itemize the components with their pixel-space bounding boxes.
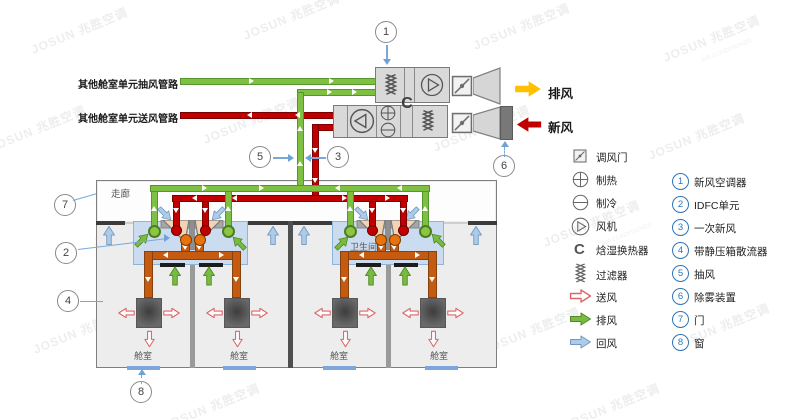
cabin-label: 舱室 [134,349,152,362]
legend-number-5: 5 [672,265,689,282]
exhaust-riser-horizontal [297,89,376,96]
diffuser-static-box [224,298,250,328]
supply-drop [173,201,180,227]
exhaust-connection-circle [148,225,161,238]
supply-air-arrow [232,331,244,348]
fan-icon [420,73,444,97]
fresh-in-arrow [514,116,544,133]
demister-block [500,106,513,140]
door-gap [444,222,468,224]
flow-arrow [202,208,208,213]
legend-numbered-label: 一次新风 [694,221,736,236]
callout-6-number: 6 [501,160,507,172]
supply-connection-circle [171,225,182,236]
callout-2-arrowhead [164,234,170,242]
legend-number-6: 6 [672,288,689,305]
legend-numbered-label: 窗 [694,336,705,351]
callout-5-line [273,157,288,158]
fresh-inlet-duct [473,104,501,142]
legend-symbol-label: 风机 [596,219,617,234]
fan-icon [349,108,375,134]
cooling-icon [380,122,396,138]
legend-numbered-label: 带静压箱散流器 [694,244,768,259]
callout-8: 8 [130,381,152,403]
legend-number-text: 7 [678,314,683,325]
enthalpy-exchanger-icon: C [399,95,415,113]
idfc-funnel-hoppers [356,220,420,250]
legend-numbered-label: 抽风 [694,267,715,282]
legend-number-3: 3 [672,219,689,236]
filter-icon [383,72,399,98]
enthalpy-exchanger-icon: C [574,241,585,258]
exhaust-out-arrow [512,80,544,98]
legend-number-text: 4 [678,245,683,256]
legend-number-1: 1 [672,173,689,190]
supply-duct-drop [428,251,437,298]
diffuser-static-box [420,298,446,328]
exhaust-main-line [150,185,430,192]
flow-arrow [422,206,428,211]
group-divider-wall [288,221,293,368]
supply-air-arrow [206,307,223,319]
flow-arrow [151,206,157,211]
damper-icon [573,149,587,163]
cabin-label: 舱室 [330,349,348,362]
legend-numbered-label: IDFC单元 [694,198,740,213]
other-cabin-supply-pipe [180,112,334,119]
watermark: JOSUN 兆胜空调 [29,3,131,57]
supply-duct-drop [144,251,153,298]
exhaust-out-label: 排风 [548,83,573,102]
callout-3-number: 3 [335,151,341,163]
legend-number-text: 3 [678,222,683,233]
wall-segment [96,221,125,225]
wall-segment [468,221,497,225]
flow-arrow [173,208,179,213]
damper-icon [451,75,473,97]
callout-2-number: 2 [63,247,69,259]
flow-arrow [297,161,303,166]
callout-5: 5 [249,146,271,168]
flow-arrow [312,178,318,183]
flow-arrow [259,185,264,191]
heating-icon [572,171,589,188]
legend-symbol-label: 调风门 [596,150,628,165]
flow-arrow [327,89,332,95]
cabin-label: 舱室 [430,349,448,362]
supply-air-arrow [163,307,180,319]
exhaust-riser [297,92,304,189]
ahu-section-divider [376,106,377,137]
supply-air-arrow [428,331,440,348]
exhaust-air-arrow [168,266,182,286]
supply-air-arrow [340,331,352,348]
fresh-in-label: 新风 [548,117,573,136]
flow-arrow [297,126,303,131]
exhaust-connection-circle [344,225,357,238]
callout-8-line [141,375,142,384]
callout-4-line [80,301,103,302]
legend-number-text: 5 [678,268,683,279]
flow-arrow [415,252,420,258]
flow-arrow [369,208,375,213]
callout-6-line [504,147,505,157]
legend-number-4: 4 [672,242,689,259]
callout-5-number: 5 [257,151,263,163]
flow-arrow [312,148,318,153]
callout-6-arrowhead [501,141,509,147]
watermark: JOSUN 兆胜空调 [471,0,573,54]
heating-icon [380,105,396,121]
flow-arrow [249,78,254,84]
flow-arrow [385,195,390,201]
legend-numbered-label: 除雾装置 [694,290,736,305]
flow-arrow [347,206,353,211]
exhaust-air-arrow [202,266,216,286]
watermark: JOSUN 兆胜空调 [646,109,748,163]
flow-arrow [202,185,207,191]
callout-5-arrowhead [288,154,294,162]
duct-outlet-circle [194,234,206,246]
diffuser-static-box [136,298,162,328]
exhaust-connection-circle [419,225,432,238]
legend-numbered-label: 新风空调器 [694,175,747,190]
watermark: JOSUN 兆胜空调 [161,379,263,420]
supply-air-arrow [314,307,331,319]
exhaust-air-arrow-icon [569,312,592,326]
callout-1: 1 [375,21,397,43]
supply-duct-drop [340,251,349,298]
flow-arrow [335,185,340,191]
flow-arrow [429,277,435,282]
duct-outlet-circle [180,234,192,246]
legend-symbol-label: 制热 [596,173,617,188]
return-air-arrow [267,226,280,246]
legend-symbol-label: 过滤器 [596,268,628,283]
callout-2: 2 [55,242,77,264]
duct-outlet-circle [389,234,401,246]
callout-1-number: 1 [383,26,389,38]
flow-arrow [233,277,239,282]
return-air-arrow [298,226,311,246]
legend-number-7: 7 [672,311,689,328]
supply-drop [202,201,209,227]
duct-outlet-circle [375,234,387,246]
return-air-arrow-icon [569,335,592,349]
supply-duct-horizontal [144,251,241,260]
callout-7-number: 7 [62,199,68,211]
legend-symbol-label: 制冷 [596,196,617,211]
callout-3: 3 [327,146,349,168]
flow-arrow [295,112,300,118]
ahu-section-divider [347,106,348,137]
legend-number-text: 1 [678,176,683,187]
supply-air-arrow [447,307,464,319]
return-air-arrow [103,226,116,246]
fan-icon [571,217,590,236]
other-cabin-exhaust-label: 其他舱室单元抽风管路 [78,76,178,91]
flow-arrow [342,195,347,201]
flow-arrow [247,112,252,118]
supply-air-arrow [251,307,268,319]
flow-arrow [359,252,364,258]
callout-7: 7 [54,194,76,216]
callout-8-number: 8 [138,386,144,398]
diagram-canvas: JOSUN 兆胜空调 JOSUN 兆胜空调 JOSUN 兆胜空调 JOSUN 兆… [0,0,800,420]
callout-3-line [311,157,326,158]
legend-number-text: 8 [678,337,683,348]
flow-arrow [192,195,197,201]
legend-number-8: 8 [672,334,689,351]
filter-icon [420,108,436,134]
callout-1-arrowhead [383,59,391,65]
legend-numbered-label: 门 [694,313,705,328]
supply-air-arrow [118,307,135,319]
corridor-label: 走廊 [111,186,130,200]
flow-arrow [341,277,347,282]
diffuser-static-box [332,298,358,328]
supply-air-arrow [359,307,376,319]
supply-duct-drop [232,251,241,298]
flow-arrow [400,208,406,213]
exhaust-outlet-duct [473,66,501,106]
flow-arrow [219,252,224,258]
watermark: JOSUN 兆胜空调 [241,0,343,44]
flow-arrow [225,206,231,211]
window-marker [223,366,256,370]
legend-number-text: 2 [678,199,683,210]
legend-symbol-label: 送风 [596,290,617,305]
window-marker [323,366,356,370]
callout-4-number: 4 [65,295,71,307]
legend-number-2: 2 [672,196,689,213]
flow-arrow [163,252,168,258]
legend-number-text: 6 [678,291,683,302]
flow-arrow [397,185,402,191]
callout-4: 4 [57,290,79,312]
callout-8-arrowhead [138,369,146,375]
callout-6: 6 [493,155,515,177]
other-cabin-supply-label: 其他舱室单元送风管路 [78,110,178,125]
filter-icon [573,263,588,284]
exhaust-air-arrow [398,266,412,286]
supply-air-arrow [144,331,156,348]
cooling-icon [572,194,589,211]
watermark: JOSUN 兆胜空调 [201,93,303,147]
flow-arrow [232,195,237,201]
flow-arrow [329,78,334,84]
return-air-arrow [470,226,483,246]
door-gap [125,222,133,224]
cabin-label: 舱室 [230,349,248,362]
legend-symbol-label: 回风 [596,336,617,351]
supply-air-arrow-icon [569,289,592,303]
supply-connection-circle [398,225,409,236]
watermark: JOSUN 兆胜空调 [561,379,663,420]
supply-air-arrow [402,307,419,319]
callout-1-line [386,45,387,59]
legend-symbol-label: 焓湿换热器 [596,243,649,258]
callout-7-line [73,193,96,201]
exhaust-connection-circle [222,225,235,238]
watermark: JOSUN 兆胜空调 [0,101,88,155]
other-cabin-exhaust-pipe [180,78,376,85]
supply-drop [369,201,376,227]
window-marker [425,366,458,370]
legend-symbol-label: 排风 [596,313,617,328]
exhaust-air-arrow [364,266,378,286]
flow-arrow [352,89,357,95]
damper-icon [451,112,473,134]
callout-3-arrowhead [305,154,311,162]
supply-duct-horizontal [340,251,437,260]
flow-arrow [145,277,151,282]
supply-drop [400,201,407,227]
